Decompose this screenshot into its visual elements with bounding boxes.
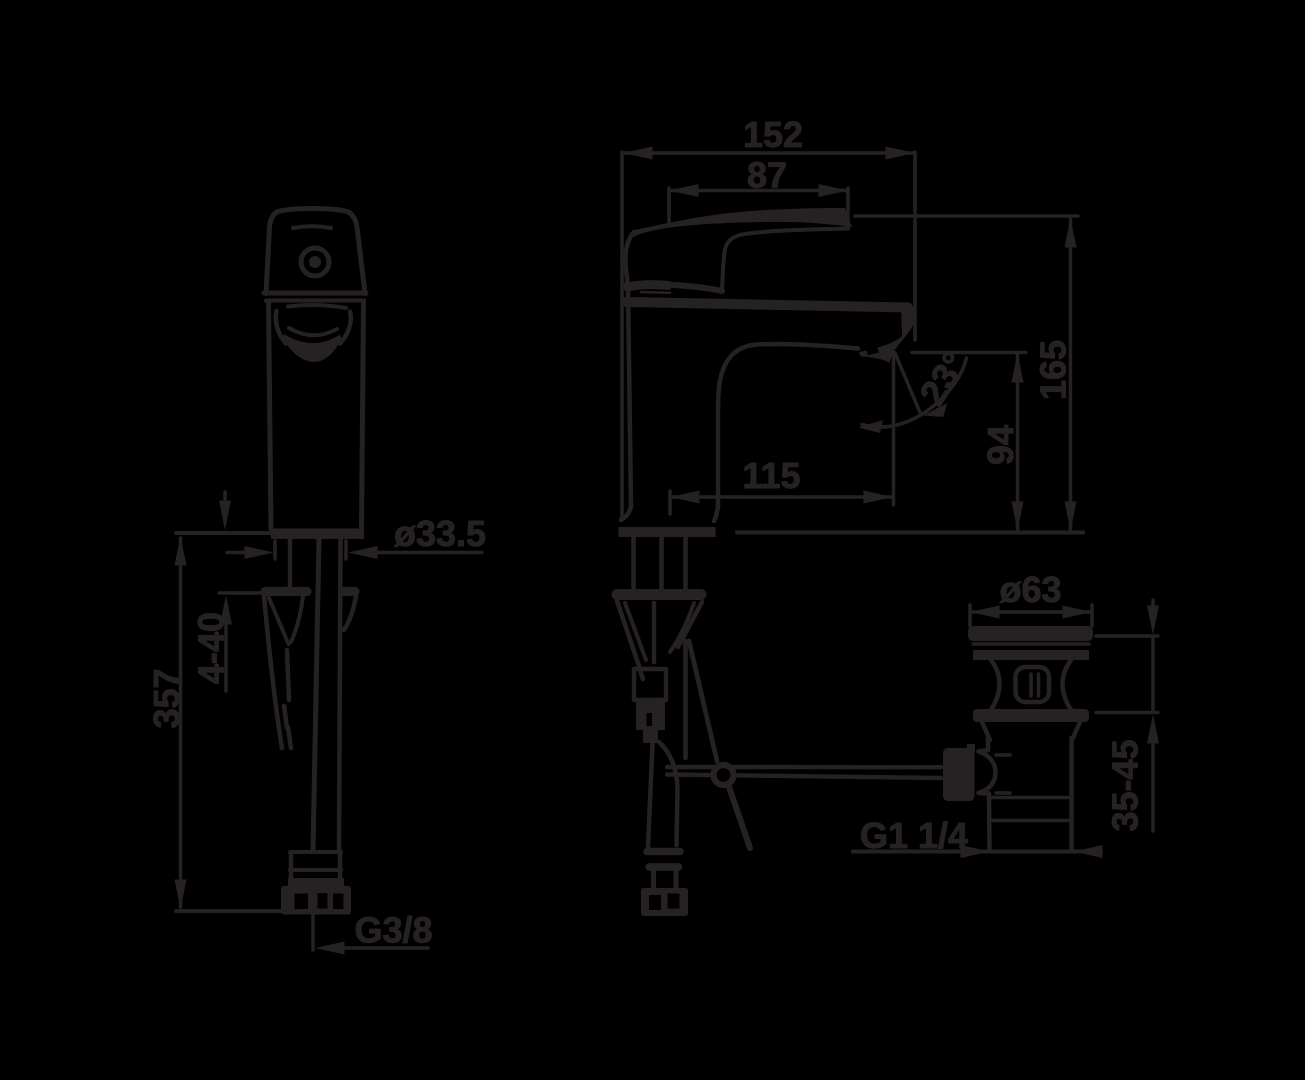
svg-text:ø63: ø63	[1000, 569, 1062, 610]
svg-text:165: 165	[1033, 340, 1074, 400]
svg-text:4-40: 4-40	[191, 612, 232, 684]
svg-text:94: 94	[980, 425, 1021, 465]
svg-text:23°: 23°	[911, 344, 975, 412]
svg-text:ø33.5: ø33.5	[394, 513, 486, 554]
svg-text:115: 115	[742, 455, 800, 496]
svg-text:G3/8: G3/8	[355, 910, 433, 951]
svg-text:357: 357	[146, 668, 187, 728]
svg-text:87: 87	[747, 155, 787, 196]
svg-text:152: 152	[743, 114, 803, 155]
svg-text:35-45: 35-45	[1105, 739, 1146, 831]
